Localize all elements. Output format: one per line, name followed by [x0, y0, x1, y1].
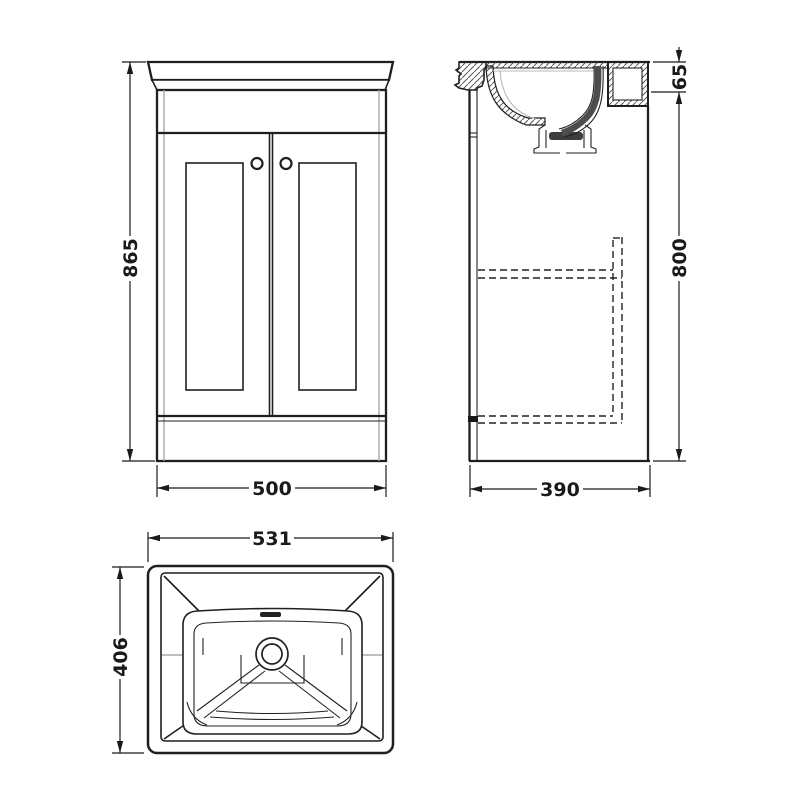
plan-drain-inner	[262, 644, 282, 664]
side-hidden-lines	[478, 237, 622, 423]
side-rear-ledge-inner	[613, 68, 642, 100]
left-door-knob	[252, 158, 263, 169]
plan-overflow-slot	[260, 612, 281, 617]
dim-side-depth: 390	[470, 465, 650, 501]
side-base-panel-section	[468, 416, 478, 422]
right-door-knob	[281, 158, 292, 169]
side-basin-bowl-wall	[486, 66, 545, 125]
side-body-height-label: 800	[669, 238, 691, 278]
front-height-label: 865	[120, 238, 142, 278]
side-rim-height-label: 65	[669, 64, 691, 90]
technical-drawing-canvas: 865 500	[0, 0, 800, 800]
dim-plan-depth: 406	[110, 567, 144, 753]
dim-side-rim-height: 65	[651, 47, 691, 92]
side-basin-rim-strip	[486, 62, 608, 68]
dim-front-height: 865	[120, 62, 155, 461]
plan-basin-rim-outer	[183, 609, 362, 735]
side-overflow-channel	[562, 66, 598, 133]
front-view: 865 500	[120, 62, 393, 500]
side-depth-label: 390	[540, 479, 580, 501]
dim-front-width: 500	[157, 465, 386, 500]
front-worktop-crown	[148, 62, 393, 80]
plan-depth-label: 406	[110, 637, 132, 677]
front-worktop-step	[152, 80, 389, 90]
front-width-label: 500	[252, 478, 292, 500]
plan-width-label: 531	[252, 528, 292, 550]
front-left-door-panel	[186, 163, 243, 390]
dim-plan-width: 531	[148, 528, 393, 562]
drawing-svg: 865 500	[0, 0, 800, 800]
side-view: 65 800 390	[455, 47, 691, 501]
dim-side-body-height: 800	[653, 92, 691, 461]
plan-view: 531 406	[110, 528, 393, 753]
front-right-door-panel	[299, 163, 356, 390]
side-front-molding	[455, 62, 486, 90]
